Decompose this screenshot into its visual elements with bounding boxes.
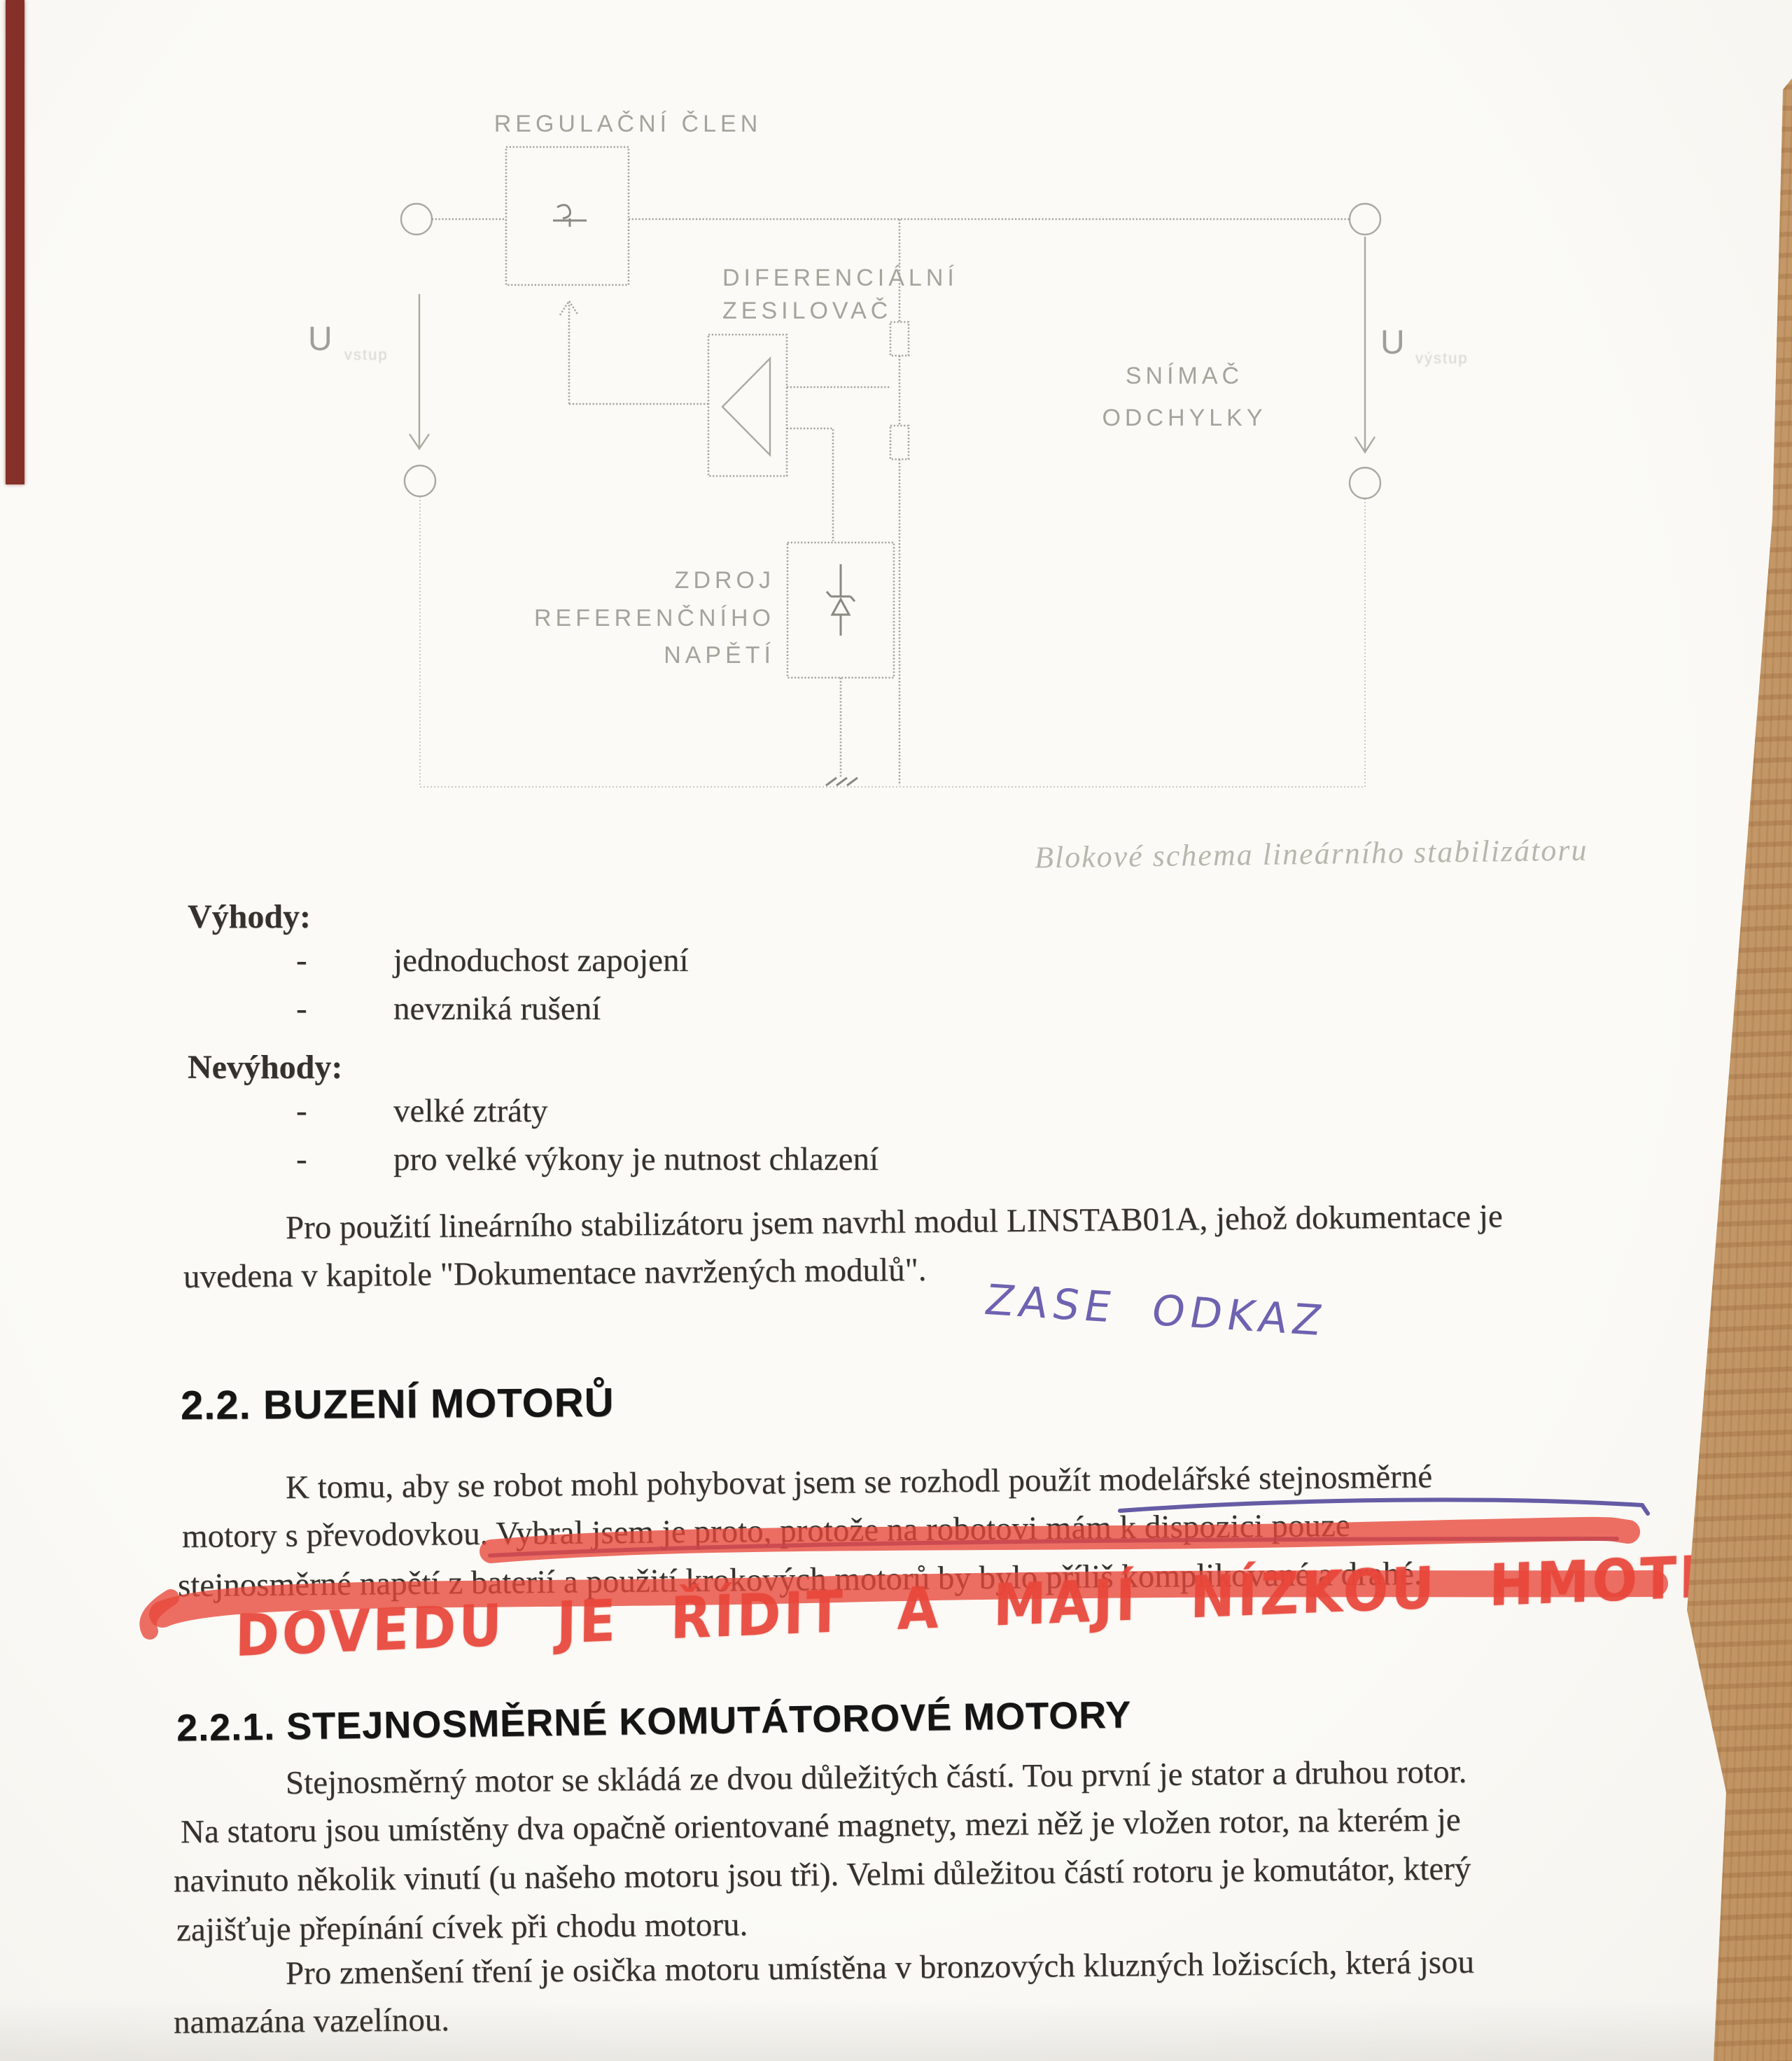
diff-amp-label-2: ZESILOVAČ [722,298,892,324]
output-voltage-arrow-icon [1355,237,1375,452]
diff-amp-label-1: DIFERENCIÁLNÍ [722,265,958,291]
opamp-triangle-icon [722,358,770,455]
body-line: Pro zmenšení tření je osička motoru umís… [286,1943,1475,1992]
reference-label-3: NAPĚTÍ [664,642,775,669]
resistor-lower-icon [890,426,909,459]
scanned-document-page: { "colors":{ "paper":"#fbfaf6","ink":"#3… [0,0,1792,2061]
resistor-upper-icon [890,322,909,356]
ground-symbol-icon [826,778,857,785]
output-terminal-top-icon [1350,204,1380,235]
transistor-symbol-icon [553,205,587,227]
sensor-label-2: ODCHYLKY [1102,405,1266,431]
body-line: zajišťuje přepínání cívek při chodu moto… [176,1906,748,1949]
body-line: Stejnosměrný motor se skládá ze dvou důl… [286,1753,1467,1802]
reference-label-2: REFERENČNÍHO [534,605,775,631]
body-line: namazána vazelínou. [174,2001,450,2041]
input-voltage-label: U [308,321,332,358]
zener-diode-symbol-icon [827,564,855,636]
advantage-item: nevzniká rušení [393,990,601,1028]
body-line: motory s převodovkou. Vybral jsem je pro… [182,1507,1350,1556]
body-line: uvedena v kapitole "Dokumentace navržený… [183,1251,927,1296]
advantage-item: jednoduchost zapojení [393,942,689,979]
handwritten-red-note: DOVEDU JE ŘÍDIT A MAJÍ NÍZKOU HMOTNOST [234,1537,1792,1669]
regulator-label: REGULAČNÍ ČLEN [494,111,762,137]
bullet-dash: - [296,942,307,979]
diff-amp-box [708,335,787,476]
input-terminal-top-icon [401,204,432,235]
output-voltage-label: U [1380,324,1405,361]
section-heading-2-2-1: 2.2.1. STEJNOSMĚRNÉ KOMUTÁTOROVÉ MOTORY [176,1693,1132,1749]
output-terminal-bottom-icon [1350,468,1380,498]
bullet-dash: - [296,1140,307,1178]
handwritten-blue-note: ZASE ODKAZ [981,1276,1331,1346]
reference-label-1: ZDROJ [675,567,775,594]
disadvantages-title: Nevýhody: [188,1048,342,1087]
input-voltage-arrow-icon [409,294,429,449]
body-line: Na statoru jsou umístěny dva opačně orie… [181,1801,1461,1851]
input-voltage-subscript: vstup [344,346,388,363]
disadvantage-item: pro velké výkony je nutnost chlazení [393,1140,878,1178]
sensor-label-1: SNÍMAČ [1126,363,1243,389]
disadvantage-item: velké ztráty [393,1092,548,1130]
stabilizer-block-diagram: REGULAČNÍ ČLEN DIFERENCIÁLNÍ ZESILOVAČ S… [0,0,1792,882]
body-line: Pro použití lineárního stabilizátoru jse… [286,1197,1503,1247]
advantages-title: Výhody: [188,897,311,936]
section-heading-2-2: 2.2. BUZENÍ MOTORŮ [181,1379,615,1429]
reference-box [787,543,894,678]
body-line: K tomu, aby se robot mohl pohybovat jsem… [286,1458,1433,1507]
bullet-dash: - [296,990,307,1028]
input-terminal-bottom-icon [405,466,435,496]
body-line: navinuto několik vinutí (u našeho motoru… [174,1850,1471,1900]
bullet-dash: - [296,1092,307,1130]
output-voltage-subscript: výstup [1415,349,1469,367]
marker-strike-hook [148,1598,171,1631]
